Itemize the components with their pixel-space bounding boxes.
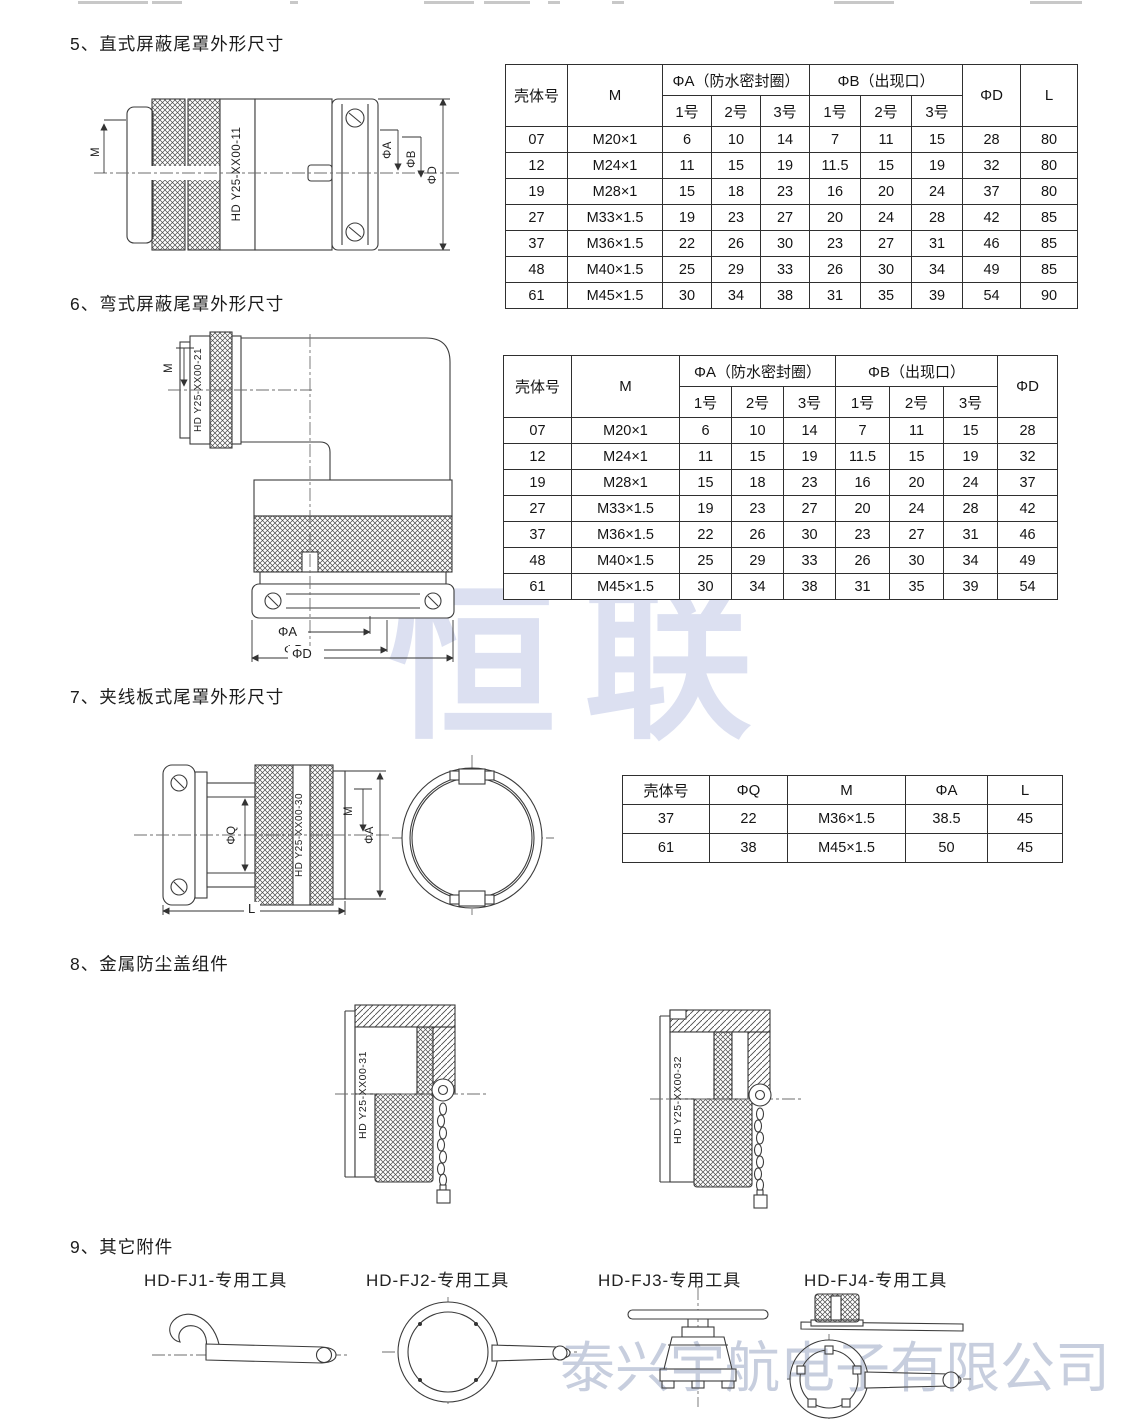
document-page: 恒联 泰兴宇航电子有限公司 5、直式屏蔽尾罩外形尺寸 HD Y25-XX00-1… — [0, 0, 1121, 1424]
table-cell: 25 — [663, 257, 712, 283]
dim-label-m: M — [343, 806, 355, 816]
table-cell: 23 — [784, 470, 836, 496]
table-cell: 39 — [944, 574, 998, 600]
cable-clamp-table: 壳体号 ΦQ M ΦA L 3722M36×1.538.5456138M45×1… — [622, 775, 1063, 863]
col-header: M — [568, 65, 663, 127]
col-header: ΦD — [963, 65, 1021, 127]
table-cell: 10 — [712, 127, 761, 153]
col-header: 3号 — [944, 387, 998, 418]
col-header: L — [988, 776, 1063, 805]
table-row: 07M20×161014711152880 — [506, 127, 1078, 153]
table-cell: 28 — [912, 205, 963, 231]
table-cell: 30 — [890, 548, 944, 574]
table-cell: 16 — [836, 470, 890, 496]
table-row: 48M40×1.525293326303449 — [504, 548, 1058, 574]
clipped-text-fragment — [152, 1, 182, 4]
table-cell: 37 — [963, 179, 1021, 205]
table-cell: 45 — [988, 834, 1063, 863]
watermark-bottom: 泰兴宇航电子有限公司 — [560, 1336, 1110, 1402]
section7-title: 7、夹线板式尾罩外形尺寸 — [70, 684, 284, 709]
clamp-ring — [402, 768, 542, 908]
table-header-row: 壳体号 ΦQ M ΦA L — [623, 776, 1063, 805]
table-cell: 23 — [836, 522, 890, 548]
table-cell: M24×1 — [572, 444, 680, 470]
table-cell: 42 — [963, 205, 1021, 231]
table-cell: 15 — [944, 418, 998, 444]
table-cell: 31 — [944, 522, 998, 548]
table-cell: 90 — [1021, 283, 1078, 309]
col-header: 2号 — [890, 387, 944, 418]
table-cell: 30 — [784, 522, 836, 548]
table-cell: M45×1.5 — [572, 574, 680, 600]
table-cell: 24 — [912, 179, 963, 205]
table-cell: M45×1.5 — [788, 834, 906, 863]
table-cell: 30 — [663, 283, 712, 309]
table-cell: M36×1.5 — [568, 231, 663, 257]
table-cell: M24×1 — [568, 153, 663, 179]
table-cell: M36×1.5 — [572, 522, 680, 548]
table-cell: 30 — [680, 574, 732, 600]
col-header: 1号 — [663, 96, 712, 127]
col-header: ΦA（防水密封圈） — [680, 356, 836, 387]
table-cell: 61 — [506, 283, 568, 309]
table-cell: 20 — [861, 179, 912, 205]
table-cell: 32 — [963, 153, 1021, 179]
table-cell: 42 — [998, 496, 1058, 522]
col-header: 1号 — [836, 387, 890, 418]
clipped-text-fragment — [1030, 1, 1082, 4]
col-header: 2号 — [712, 96, 761, 127]
table-row: 37M36×1.52226302327314685 — [506, 231, 1078, 257]
table-row: 27M33×1.519232720242842 — [504, 496, 1058, 522]
table-cell: 18 — [712, 179, 761, 205]
table-cell: 28 — [963, 127, 1021, 153]
table-cell: 85 — [1021, 231, 1078, 257]
elbow-backshell-drawing: HD Y25-XX00-21 M ΦA ΦB ΦD — [160, 328, 470, 663]
table-cell: 28 — [944, 496, 998, 522]
table-cell: 20 — [836, 496, 890, 522]
cable-clamp-backshell-drawing: HD Y25-XX00-30 ΦQ M ΦA L — [130, 745, 560, 917]
table-cell: 7 — [810, 127, 861, 153]
table-cell: 45 — [988, 805, 1063, 834]
table-cell: 27 — [506, 205, 568, 231]
dim-label-l: L — [248, 901, 255, 916]
col-header: 壳体号 — [623, 776, 710, 805]
table-header-row: 壳体号 M ΦA（防水密封圈） ΦB（出现口） ΦD — [504, 356, 1058, 387]
table-cell: 15 — [732, 444, 784, 470]
table-cell: 34 — [944, 548, 998, 574]
tool-label-fj2: HD-FJ2-专用工具 — [366, 1266, 509, 1291]
table-cell: 85 — [1021, 205, 1078, 231]
table-cell: M40×1.5 — [572, 548, 680, 574]
table-cell: M28×1 — [572, 470, 680, 496]
table-cell: 39 — [912, 283, 963, 309]
table-cell: 11 — [861, 127, 912, 153]
clamp-saddle — [459, 891, 485, 906]
table-cell: 20 — [810, 205, 861, 231]
table-cell: 30 — [761, 231, 810, 257]
table-cell: 6 — [680, 418, 732, 444]
col-header: 3号 — [912, 96, 963, 127]
clipped-text-fragment — [424, 1, 474, 4]
table-cell: 19 — [784, 444, 836, 470]
table-cell: 26 — [836, 548, 890, 574]
table-cell: 07 — [506, 127, 568, 153]
table-cell: 26 — [712, 231, 761, 257]
table-cell: 38 — [784, 574, 836, 600]
table-row: 12M24×111151911.5151932 — [504, 444, 1058, 470]
table-cell: 15 — [890, 444, 944, 470]
table-cell: 15 — [663, 179, 712, 205]
col-header: ΦB（出现口） — [810, 65, 963, 96]
table-cell: M45×1.5 — [568, 283, 663, 309]
table-cell: 85 — [1021, 257, 1078, 283]
table-header-row: 壳体号 M ΦA（防水密封圈） ΦB（出现口） ΦD L — [506, 65, 1078, 96]
table-cell: 22 — [663, 231, 712, 257]
table-cell: 24 — [944, 470, 998, 496]
table-cell: 37 — [506, 231, 568, 257]
table-cell: 23 — [761, 179, 810, 205]
table-cell: M33×1.5 — [572, 496, 680, 522]
table-cell: 46 — [998, 522, 1058, 548]
dim-label-a: ΦA — [278, 624, 297, 639]
table-cell: 27 — [761, 205, 810, 231]
table-row: 3722M36×1.538.545 — [623, 805, 1063, 834]
table-cell: 23 — [732, 496, 784, 522]
col-header: M — [572, 356, 680, 418]
part-number-label: HD Y25-XX00-21 — [193, 348, 204, 432]
backshell-cap — [127, 107, 153, 243]
table-cell: 11 — [890, 418, 944, 444]
table-cell: 38 — [710, 834, 788, 863]
knurl-band — [375, 1094, 433, 1182]
dim-label-d: ΦD — [427, 166, 439, 184]
col-header: ΦQ — [710, 776, 788, 805]
dust-cap-drawing-right: HD Y25-XX00-32 — [648, 1002, 808, 1222]
table-cell: 80 — [1021, 127, 1078, 153]
table-cell: 38.5 — [906, 805, 988, 834]
table-cell: 19 — [912, 153, 963, 179]
table-cell: 24 — [890, 496, 944, 522]
table-cell: 22 — [710, 805, 788, 834]
table-cell: 27 — [784, 496, 836, 522]
table-row: 61M45×1.530343831353954 — [504, 574, 1058, 600]
col-header: 1号 — [680, 387, 732, 418]
table-cell: M40×1.5 — [568, 257, 663, 283]
table-row: 61M45×1.53034383135395490 — [506, 283, 1078, 309]
table-row: 27M33×1.51923272024284285 — [506, 205, 1078, 231]
table-cell: 27 — [504, 496, 572, 522]
table-cell: 49 — [963, 257, 1021, 283]
table-cell: 29 — [712, 257, 761, 283]
part-number-label: HD Y25-XX00-31 — [357, 1051, 369, 1139]
table-cell: 61 — [504, 574, 572, 600]
table-row: 48M40×1.52529332630344985 — [506, 257, 1078, 283]
table-cell: 61 — [623, 834, 710, 863]
table-cell: 26 — [732, 522, 784, 548]
table-row: 07M20×1610147111528 — [504, 418, 1058, 444]
table-cell: 80 — [1021, 179, 1078, 205]
col-header: 2号 — [861, 96, 912, 127]
col-header: 3号 — [761, 96, 810, 127]
table-cell: 6 — [663, 127, 712, 153]
table-cell: 37 — [504, 522, 572, 548]
table-cell: 32 — [998, 444, 1058, 470]
table-cell: M28×1 — [568, 179, 663, 205]
table-cell: 35 — [890, 574, 944, 600]
table-cell: 54 — [963, 283, 1021, 309]
clipped-text-fragment — [78, 1, 148, 4]
table-cell: 11.5 — [810, 153, 861, 179]
table-row: 37M36×1.522263023273146 — [504, 522, 1058, 548]
table-cell: 27 — [890, 522, 944, 548]
tool-label-fj1: HD-FJ1-专用工具 — [144, 1266, 287, 1291]
col-header: ΦD — [998, 356, 1058, 418]
col-header: ΦA — [906, 776, 988, 805]
dim-label-a: ΦA — [382, 141, 394, 159]
knurl-band — [254, 516, 452, 572]
clipped-text-fragment — [548, 1, 560, 4]
table-cell: 20 — [890, 470, 944, 496]
dim-label-d: ΦD — [292, 646, 312, 661]
hook-spanner-drawing — [150, 1300, 350, 1405]
table-cell: M36×1.5 — [788, 805, 906, 834]
table-cell: 24 — [861, 205, 912, 231]
table-cell: 14 — [761, 127, 810, 153]
table-cell: 12 — [506, 153, 568, 179]
col-header: 壳体号 — [504, 356, 572, 418]
table-cell: 19 — [761, 153, 810, 179]
table-cell: 34 — [712, 283, 761, 309]
table-cell: 7 — [836, 418, 890, 444]
section8-title: 8、金属防尘盖组件 — [70, 951, 229, 976]
bead-chain — [754, 1108, 767, 1208]
part-number-label: HD Y25-XX00-32 — [672, 1056, 684, 1144]
table-cell: 23 — [810, 231, 861, 257]
table-cell: 33 — [761, 257, 810, 283]
ring-spanner-drawing — [380, 1295, 580, 1410]
table-cell: M20×1 — [572, 418, 680, 444]
table-cell: 30 — [861, 257, 912, 283]
table-cell: 15 — [912, 127, 963, 153]
clipped-text-fragment — [834, 1, 894, 4]
table-cell: 22 — [680, 522, 732, 548]
col-header: L — [1021, 65, 1078, 127]
table-cell: 50 — [906, 834, 988, 863]
section5-title: 5、直式屏蔽尾罩外形尺寸 — [70, 31, 284, 56]
table-cell: 34 — [732, 574, 784, 600]
elbow-backshell-table: 壳体号 M ΦA（防水密封圈） ΦB（出现口） ΦD 1号 2号 3号 1号 2… — [503, 355, 1058, 600]
table-cell: 15 — [680, 470, 732, 496]
col-header: M — [788, 776, 906, 805]
part-number-label: HD Y25-XX00-30 — [294, 793, 305, 877]
table-cell: 31 — [810, 283, 861, 309]
table-cell: 35 — [861, 283, 912, 309]
straight-backshell-drawing: HD Y25-XX00-11 M ΦA ΦB ΦD — [90, 80, 480, 270]
table-cell: 18 — [732, 470, 784, 496]
table-cell: 80 — [1021, 153, 1078, 179]
table-cell: 11 — [680, 444, 732, 470]
dim-label-a: ΦA — [364, 826, 376, 844]
table-cell: 33 — [784, 548, 836, 574]
table-cell: 25 — [680, 548, 732, 574]
table-cell: 23 — [712, 205, 761, 231]
knurl-band — [694, 1099, 752, 1187]
table-cell: 15 — [861, 153, 912, 179]
col-header: ΦB（出现口） — [836, 356, 998, 387]
table-cell: 19 — [506, 179, 568, 205]
clipped-text-fragment — [612, 1, 624, 4]
table-cell: 19 — [504, 470, 572, 496]
table-row: 19M28×11518231620243780 — [506, 179, 1078, 205]
table-row: 12M24×111151911.515193280 — [506, 153, 1078, 179]
table-cell: 07 — [504, 418, 572, 444]
table-cell: 29 — [732, 548, 784, 574]
table-cell: 37 — [998, 470, 1058, 496]
col-header: 1号 — [810, 96, 861, 127]
table-cell: 26 — [810, 257, 861, 283]
table-cell: 48 — [504, 548, 572, 574]
table-cell: 19 — [663, 205, 712, 231]
dim-label-m: M — [90, 147, 102, 157]
table-cell: 37 — [623, 805, 710, 834]
dim-label-m: M — [163, 363, 175, 373]
table-cell: 14 — [784, 418, 836, 444]
col-header: 壳体号 — [506, 65, 568, 127]
screw-plate — [252, 584, 454, 618]
table-row: 19M28×115182316202437 — [504, 470, 1058, 496]
section9-title: 9、其它附件 — [70, 1234, 173, 1259]
table-cell: M33×1.5 — [568, 205, 663, 231]
table-cell: 54 — [998, 574, 1058, 600]
table-cell: 31 — [912, 231, 963, 257]
col-header: ΦA（防水密封圈） — [663, 65, 810, 96]
table-cell: 19 — [944, 444, 998, 470]
bead-chain — [437, 1103, 450, 1203]
table-cell: 16 — [810, 179, 861, 205]
table-cell: 11 — [663, 153, 712, 179]
dust-cap-drawing-left: HD Y25-XX00-31 — [333, 997, 493, 1217]
clipped-text-fragment — [484, 1, 530, 4]
table-cell: 46 — [963, 231, 1021, 257]
table-cell: 27 — [861, 231, 912, 257]
table-cell: 15 — [712, 153, 761, 179]
table-cell: 31 — [836, 574, 890, 600]
table-cell: 48 — [506, 257, 568, 283]
col-header: 2号 — [732, 387, 784, 418]
table-cell: 49 — [998, 548, 1058, 574]
dim-label-q: ΦQ — [226, 825, 238, 844]
clamp-saddle — [459, 769, 485, 784]
table-cell: 11.5 — [836, 444, 890, 470]
table-cell: 38 — [761, 283, 810, 309]
dim-label-b: ΦB — [406, 150, 418, 168]
straight-backshell-table: 壳体号 M ΦA（防水密封圈） ΦB（出现口） ΦD L 1号 2号 3号 1号… — [505, 64, 1078, 309]
section6-title: 6、弯式屏蔽尾罩外形尺寸 — [70, 291, 284, 316]
table-row: 6138M45×1.55045 — [623, 834, 1063, 863]
table-cell: 10 — [732, 418, 784, 444]
part-number-label: HD Y25-XX00-11 — [231, 127, 243, 222]
clipped-text-fragment — [290, 1, 298, 4]
table-cell: 34 — [912, 257, 963, 283]
table-cell: 19 — [680, 496, 732, 522]
table-cell: 12 — [504, 444, 572, 470]
col-header: 3号 — [784, 387, 836, 418]
table-cell: M20×1 — [568, 127, 663, 153]
table-cell: 28 — [998, 418, 1058, 444]
